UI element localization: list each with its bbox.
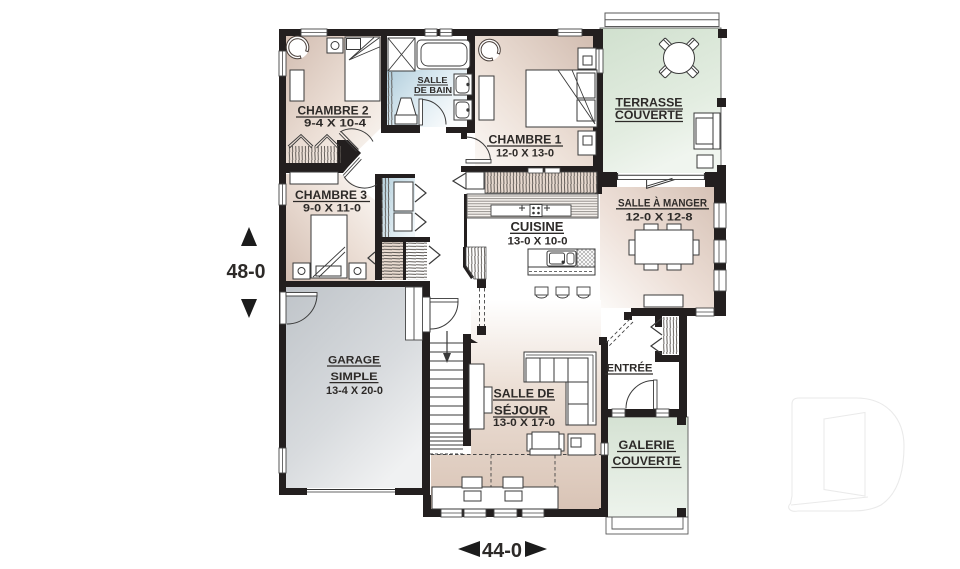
svg-text:CHAMBRE 3: CHAMBRE 3 <box>295 188 367 202</box>
svg-text:DE BAIN: DE BAIN <box>414 86 452 95</box>
svg-text:SIMPLE: SIMPLE <box>331 371 379 383</box>
svg-text:13-0 X 17-0: 13-0 X 17-0 <box>493 417 555 429</box>
svg-text:9-4 X 10-4: 9-4 X 10-4 <box>304 118 366 130</box>
svg-text:GALERIE: GALERIE <box>619 440 675 452</box>
svg-text:48-0: 48-0 <box>227 261 266 283</box>
svg-text:12-0 X 13-0: 12-0 X 13-0 <box>496 148 554 160</box>
svg-text:GARAGE: GARAGE <box>328 355 381 367</box>
svg-text:SÉJOUR: SÉJOUR <box>494 403 548 418</box>
svg-text:13-0 X 10-0: 13-0 X 10-0 <box>508 236 568 248</box>
svg-text:SALLE À MANGER: SALLE À MANGER <box>618 197 707 210</box>
svg-text:COUVERTE: COUVERTE <box>613 456 681 468</box>
svg-text:12-0 X 12-8: 12-0 X 12-8 <box>626 212 693 224</box>
svg-text:ENTRÉE: ENTRÉE <box>607 362 654 375</box>
svg-text:CHAMBRE 2: CHAMBRE 2 <box>298 104 369 118</box>
svg-text:44-0: 44-0 <box>482 540 522 562</box>
svg-text:SALLE: SALLE <box>418 76 449 85</box>
svg-text:CHAMBRE 1: CHAMBRE 1 <box>489 133 562 147</box>
svg-text:9-0 X 11-0: 9-0 X 11-0 <box>303 203 361 215</box>
svg-text:13-4 X 20-0: 13-4 X 20-0 <box>326 385 383 397</box>
svg-text:SALLE DE: SALLE DE <box>494 387 555 401</box>
svg-text:COUVERTE: COUVERTE <box>615 108 683 122</box>
svg-text:CUISINE: CUISINE <box>511 219 564 234</box>
